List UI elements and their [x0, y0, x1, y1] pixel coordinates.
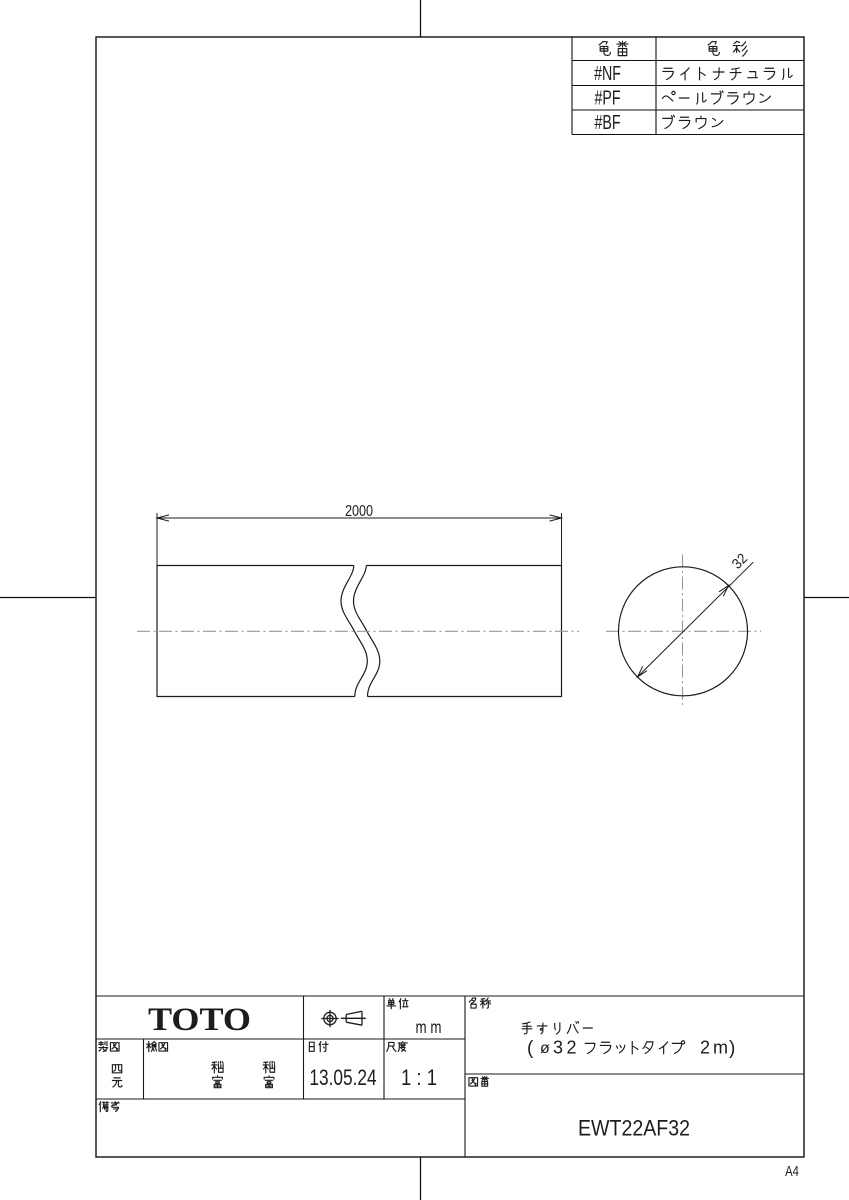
svg-text:#BF: #BF — [594, 111, 620, 134]
svg-text:TOTO: TOTO — [148, 1002, 251, 1038]
svg-text:13.05.24: 13.05.24 — [309, 1066, 376, 1090]
svg-text:EWT22AF32: EWT22AF32 — [578, 1116, 690, 1140]
svg-text:#NF: #NF — [594, 62, 621, 85]
svg-text:2m: 2m — [700, 1038, 731, 1058]
svg-text:1 : 1: 1 : 1 — [401, 1067, 437, 1091]
svg-text:A4: A4 — [785, 1162, 799, 1179]
svg-text:(: ( — [527, 1038, 534, 1059]
svg-text:#PF: #PF — [594, 86, 620, 109]
svg-text:m m: m m — [416, 1018, 442, 1037]
svg-text:2000: 2000 — [345, 503, 373, 521]
svg-text:ø: ø — [540, 1040, 550, 1057]
svg-text:32: 32 — [553, 1038, 580, 1058]
svg-text:): ) — [729, 1038, 735, 1059]
